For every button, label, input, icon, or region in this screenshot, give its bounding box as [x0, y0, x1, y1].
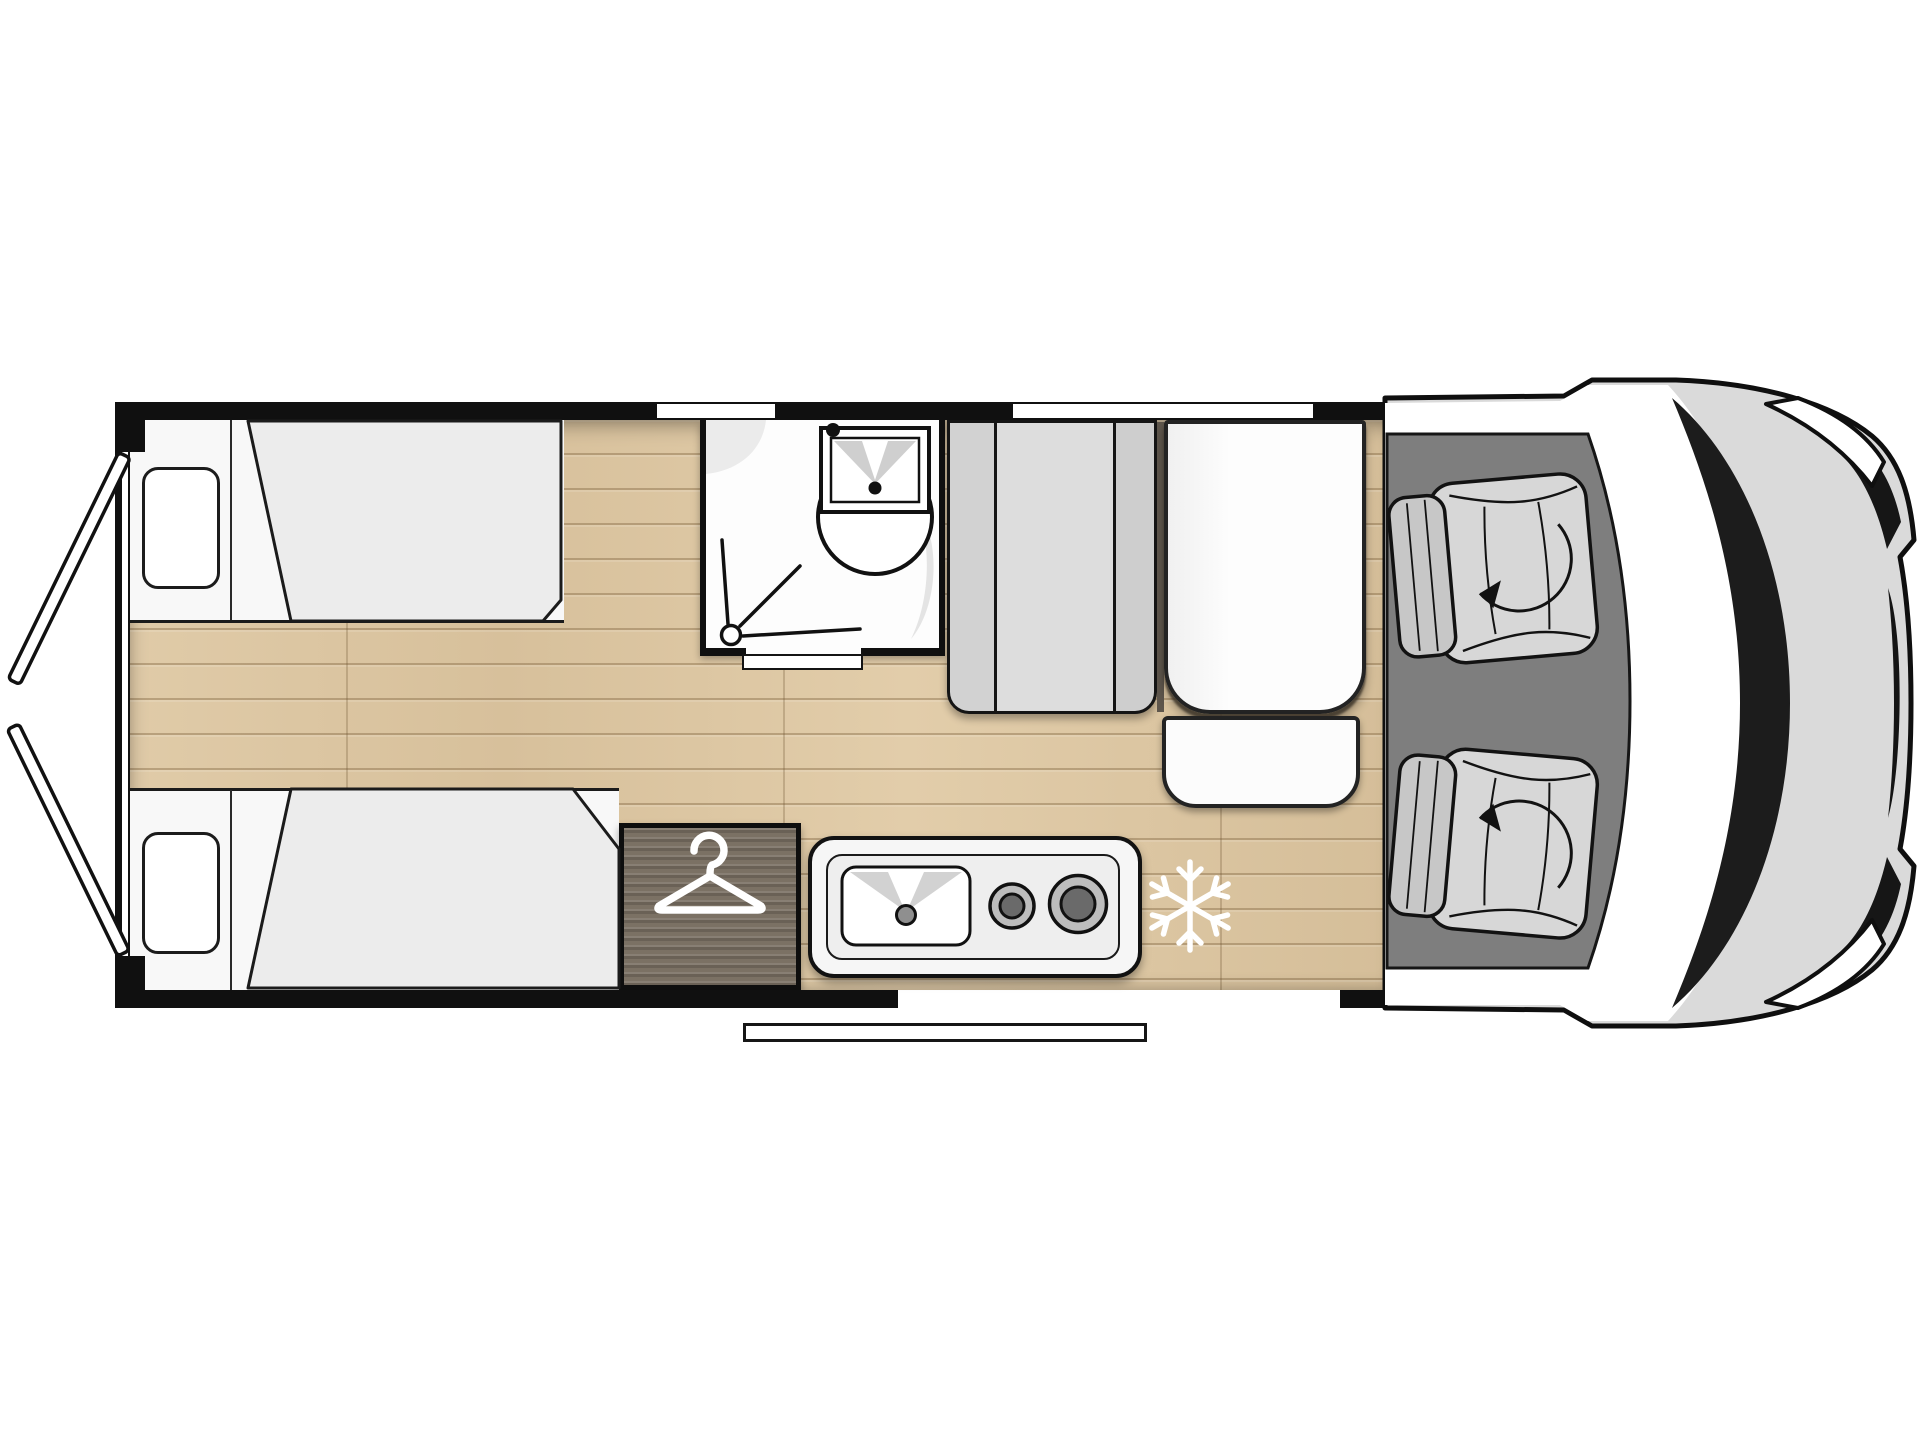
bed-top-pillow	[142, 467, 220, 589]
window-top-shower	[657, 404, 775, 418]
swivel-arrow-icon	[1475, 523, 1576, 614]
vehicle-front	[1385, 380, 1914, 1026]
wall-rear-corner-bottom	[115, 956, 145, 1008]
cab-floor	[1387, 434, 1630, 968]
headlight-bottom	[1766, 920, 1884, 1008]
bed-top-frame-line	[230, 420, 232, 620]
kitchen-counter	[826, 854, 1120, 960]
nose-corner-bottom	[1838, 857, 1901, 964]
rear-doors	[7, 452, 130, 956]
rear-door-bottom	[7, 724, 129, 956]
wardrobe	[619, 823, 801, 990]
nose-corner-top	[1838, 442, 1901, 549]
wall-bottom-left	[115, 990, 898, 1008]
cabinet-panel-left	[950, 423, 994, 711]
window-top-dinette	[1013, 404, 1313, 418]
cabinet-bench-divider	[1157, 422, 1164, 712]
windshield	[1385, 385, 1772, 1021]
floorplan-canvas	[0, 0, 1920, 1440]
swivel-seat-driver	[1387, 472, 1600, 669]
vehicle-body	[1385, 380, 1914, 1026]
dinette-table	[1162, 716, 1360, 808]
a-pillar-cowl	[1672, 398, 1790, 1008]
swivel-arrow-icon	[1475, 798, 1576, 889]
bed-bottom-pillow	[142, 832, 220, 954]
bed-bottom-frame-line	[230, 790, 232, 990]
headlight-top	[1766, 398, 1884, 486]
cabinet-panel-right	[1116, 423, 1154, 711]
tall-cabinet	[947, 420, 1157, 714]
rear-door-frame	[120, 452, 130, 956]
swivel-seat-passenger	[1387, 744, 1600, 941]
dinette-bench	[1164, 420, 1366, 714]
shower-room	[700, 420, 945, 654]
rear-door-top	[8, 452, 130, 684]
grille-line	[1888, 588, 1900, 818]
shower-room-wall-bottom-right	[861, 648, 945, 656]
shower-door-threshold	[742, 654, 863, 670]
shower-room-wall-bottom-left	[700, 648, 746, 656]
entry-step	[743, 1023, 1147, 1042]
cabinet-panel-middle	[997, 423, 1113, 711]
wall-rear-corner-top	[115, 402, 145, 452]
wall-bottom-right	[1340, 990, 1386, 1008]
